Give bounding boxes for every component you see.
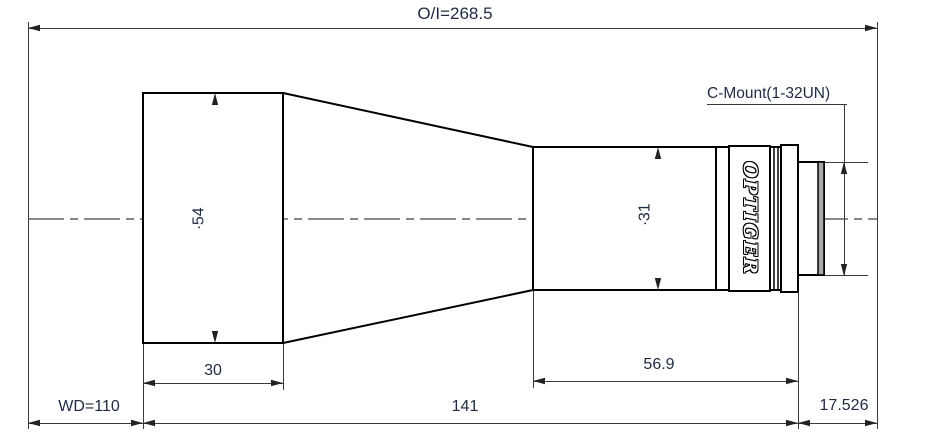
barrel-section-length-dimension: 56.9 [629, 356, 689, 373]
overall-length-dimension: O/I=268.5 [355, 5, 555, 22]
brand-engraving: OPTIGER [737, 150, 762, 287]
front-cylinder [143, 93, 283, 343]
barrel-diameter-dimension: ∙31 [637, 186, 654, 244]
lens-drawing-geometry [0, 0, 927, 442]
lens-technical-drawing: O/I=268.5 C-Mount(1-32UN) ∙54 ∙31 30 56.… [0, 0, 927, 442]
working-distance-dimension: WD=110 [49, 398, 129, 415]
front-section-length-dimension: 30 [183, 362, 243, 379]
cone-top-edge [283, 93, 533, 147]
flange-focal-distance-dimension: 17.526 [812, 397, 876, 414]
cmount-thread-label: C-Mount(1-32UN) [707, 85, 830, 102]
lens-body-outline [143, 93, 824, 343]
lens-body-length-dimension: 141 [435, 398, 495, 415]
thread-end-band [818, 162, 824, 275]
mount-flange [781, 145, 798, 292]
front-diameter-dimension: ∙54 [191, 190, 208, 248]
cone-bottom-edge [283, 290, 533, 343]
